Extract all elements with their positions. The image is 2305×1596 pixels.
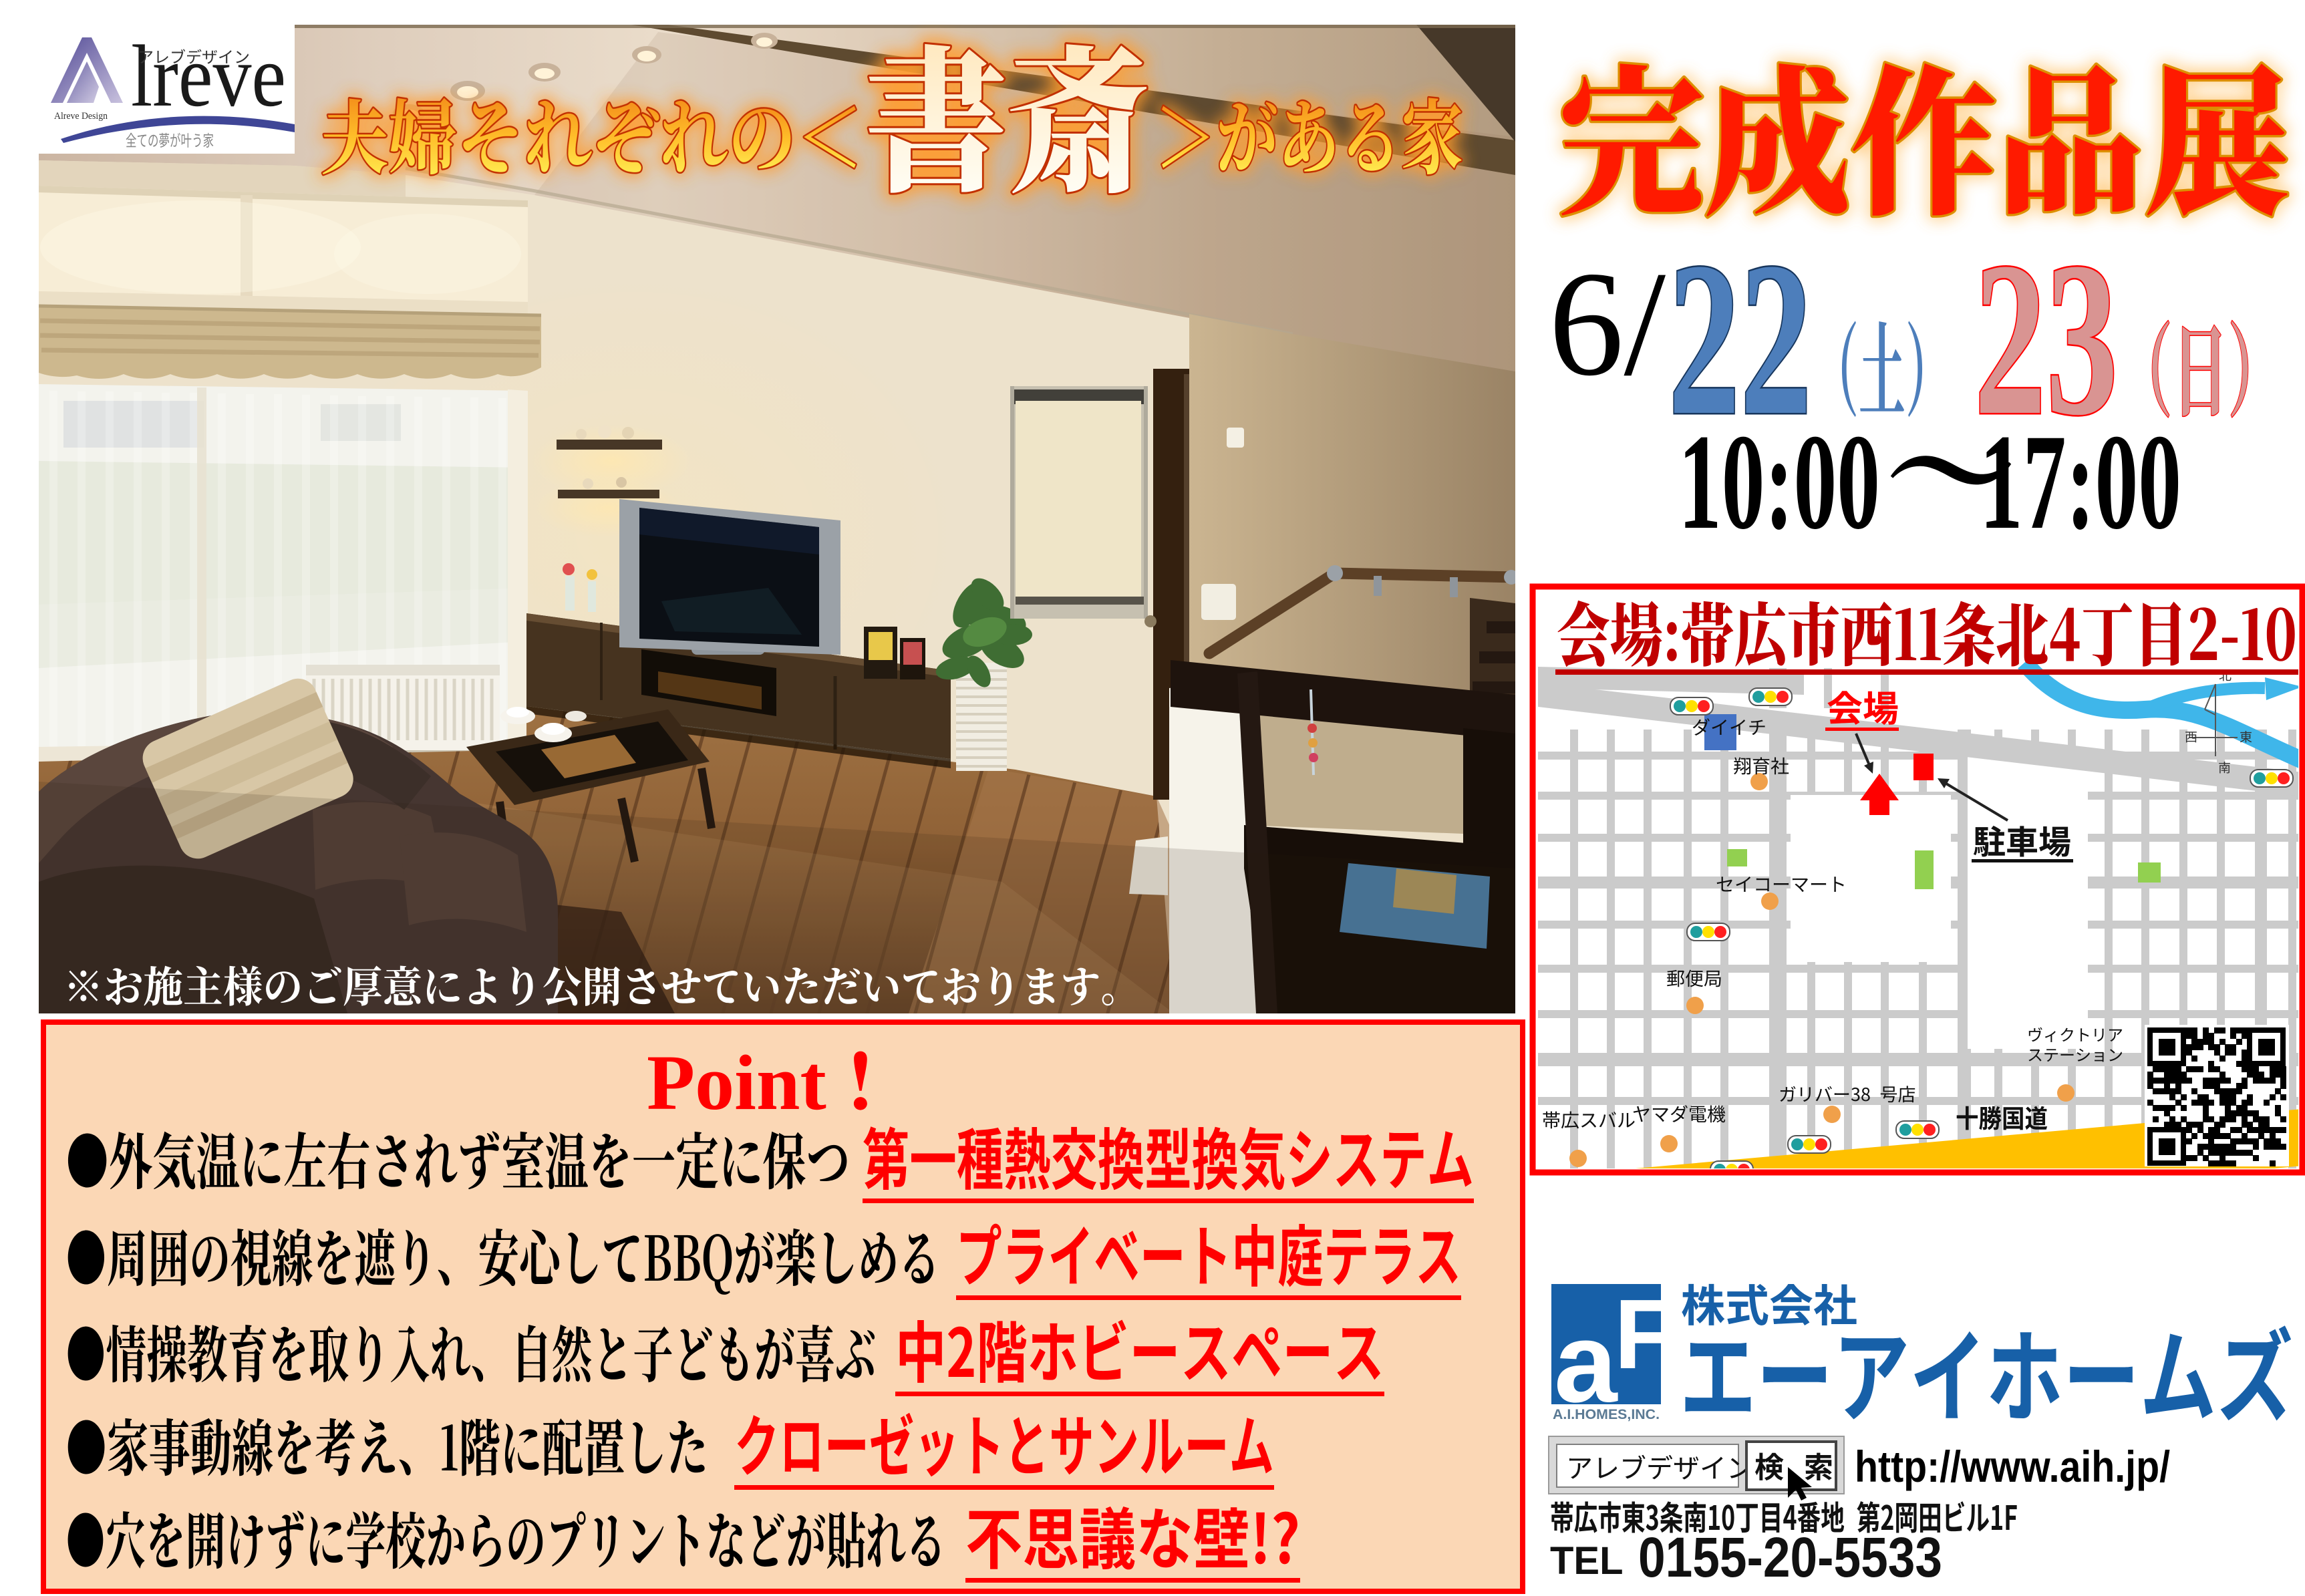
svg-text:lreve: lreve (131, 27, 286, 125)
svg-text:TEL: TEL (1550, 1539, 1624, 1583)
svg-text:A.I.HOMES,INC.: A.I.HOMES,INC. (1553, 1407, 1660, 1422)
svg-text:10:00: 10:00 (1678, 406, 1880, 558)
svg-text:Point: Point (647, 1039, 826, 1126)
svg-text:17:00: 17:00 (1980, 406, 2181, 558)
svg-text:6/: 6/ (1549, 240, 1666, 407)
svg-text:http://www.aih.jp/: http://www.aih.jp/ (1855, 1442, 2170, 1491)
svg-text:Alreve Design: Alreve Design (54, 111, 108, 122)
svg-text:0155-20-5533: 0155-20-5533 (1638, 1526, 1942, 1589)
svg-text:F: F (1614, 1279, 1674, 1390)
